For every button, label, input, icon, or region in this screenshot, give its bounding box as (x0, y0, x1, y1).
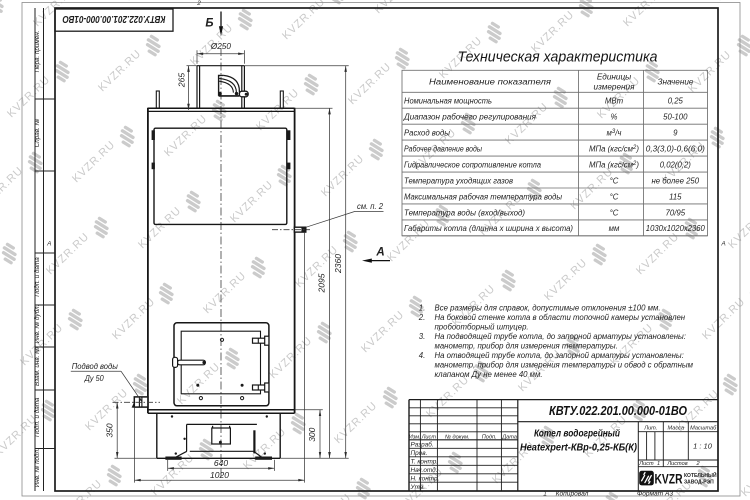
svg-text:KVZR.RU: KVZR.RU (280, 0, 328, 42)
svg-text:Подп. и дата: Подп. и дата (33, 397, 41, 437)
svg-text:1.: 1. (419, 304, 426, 313)
svg-text:KVZR.RU: KVZR.RU (332, 400, 380, 447)
svg-text:KVZR.RU: KVZR.RU (700, 296, 748, 343)
svg-text:КОТЕЛЬНЫЙ: КОТЕЛЬНЫЙ (684, 471, 717, 479)
svg-text:Инв. № дубл.: Инв. № дубл. (33, 305, 41, 344)
svg-text:KVZR.RU: KVZR.RU (346, 61, 394, 108)
svg-text:Инв. № подл.: Инв. № подл. (33, 448, 41, 487)
svg-text:KVZR.RU: KVZR.RU (359, 309, 407, 356)
svg-text:KVZR.RU: KVZR.RU (228, 179, 276, 226)
svg-text:Значение: Значение (658, 77, 694, 86)
svg-text:0,25: 0,25 (668, 97, 684, 106)
svg-text:м3/ч: м3/ч (607, 129, 622, 138)
svg-text:Б: Б (205, 18, 213, 30)
svg-text:KVZR.RU: KVZR.RU (110, 296, 158, 343)
svg-text:KVZR.RU: KVZR.RU (739, 453, 750, 500)
svg-text:Дата: Дата (501, 434, 517, 440)
svg-text:Температура воды (вход/выход): Температура воды (вход/выход) (404, 208, 525, 217)
svg-text:KVZR.RU: KVZR.RU (162, 113, 210, 160)
svg-text:2: 2 (695, 461, 700, 467)
svg-text:Утв.: Утв. (410, 484, 426, 491)
svg-text:пробоотборный штуцер.: пробоотборный штуцер. (435, 323, 529, 332)
svg-text:Лист: Лист (421, 434, 437, 440)
svg-text:KVZR.RU: KVZR.RU (201, 270, 249, 317)
svg-text:1: 1 (657, 461, 660, 467)
svg-text:КВТУ.022.201.00.000-01ВО: КВТУ.022.201.00.000-01ВО (63, 13, 166, 25)
svg-text:Номинальная мощность: Номинальная мощность (404, 97, 492, 106)
svg-text:Диапазон рабочего регулировани: Диапазон рабочего регулирования (403, 113, 537, 122)
svg-text:Техническая характеристика: Техническая характеристика (458, 50, 658, 66)
svg-text:На отводящей трубе котла, до з: На отводящей трубе котла, до запорной ар… (435, 351, 684, 360)
svg-text:манометр, прибор для измерения: манометр, прибор для измерения температу… (435, 342, 618, 351)
svg-text:1030х1020х2360: 1030х1020х2360 (646, 224, 706, 233)
svg-text:Heatexpert-КВр-0,25-КБ(К): Heatexpert-КВр-0,25-КБ(К) (520, 441, 637, 453)
svg-text:2: 2 (196, 0, 201, 7)
svg-text:На подводящей трубе котла, до: На подводящей трубе котла, до запорной а… (435, 332, 686, 341)
svg-text:Котел водогрейный: Котел водогрейный (534, 427, 620, 439)
svg-text:клапаном Ду не менее 40 мм.: клапаном Ду не менее 40 мм. (435, 370, 543, 379)
svg-text:KVZR.RU: KVZR.RU (634, 231, 682, 278)
svg-text:KVZR.RU: KVZR.RU (57, 478, 105, 500)
svg-text:50-100: 50-100 (663, 113, 688, 122)
svg-text:Перв. примен.: Перв. примен. (34, 31, 41, 73)
svg-text:Рабочее давление воды: Рабочее давление воды (404, 144, 482, 153)
svg-text:Взам. инв. №: Взам. инв. № (34, 347, 41, 386)
svg-text:640: 640 (214, 458, 228, 468)
svg-text:KVZR.RU: KVZR.RU (319, 153, 367, 200)
svg-text:KVZR.RU: KVZR.RU (568, 166, 616, 213)
svg-text:KVZR.RU: KVZR.RU (70, 139, 118, 186)
svg-text:А: А (375, 246, 384, 258)
svg-text:KVZR.RU: KVZR.RU (5, 74, 53, 121)
svg-text:2.: 2. (418, 313, 426, 322)
svg-text:Масса: Масса (668, 425, 685, 431)
svg-text:Н. контр.: Н. контр. (411, 476, 440, 483)
svg-text:0,02(0,2): 0,02(0,2) (660, 160, 692, 169)
svg-text:Единицы: Единицы (597, 73, 631, 82)
svg-text:2360: 2360 (333, 254, 343, 274)
svg-text:KVZR.RU: KVZR.RU (18, 322, 66, 369)
svg-text:Формат А3: Формат А3 (637, 491, 673, 498)
svg-text:KVZR.RU: KVZR.RU (136, 205, 184, 252)
svg-text:измерения: измерения (594, 83, 636, 92)
svg-text:Изм.: Изм. (409, 434, 421, 440)
svg-text:А: А (46, 241, 51, 248)
svg-text:МПа (кгс/см2): МПа (кгс/см2) (589, 144, 639, 153)
svg-text:KVZR.RU: KVZR.RU (686, 49, 734, 96)
svg-text:см. п. 2: см. п. 2 (357, 201, 383, 211)
svg-text:350: 350 (105, 423, 115, 437)
svg-text:Все размеры для справок, допус: Все размеры для справок, допустимые откл… (435, 304, 661, 313)
svg-text:Расход воды: Расход воды (404, 129, 450, 138)
svg-text:KVZR.RU: KVZR.RU (424, 374, 472, 421)
svg-text:°С: °С (610, 192, 619, 201)
svg-text:KVZR.RU: KVZR.RU (529, 9, 577, 56)
svg-text:°С: °С (610, 208, 619, 217)
svg-text:0,3(3,0)-0,6(6,0): 0,3(3,0)-0,6(6,0) (646, 144, 705, 153)
svg-text:300: 300 (307, 427, 317, 441)
svg-text:Наименование показателя: Наименование показателя (429, 77, 552, 86)
svg-text:Т. контр.: Т. контр. (411, 459, 439, 466)
svg-text:Подп.: Подп. (482, 434, 497, 440)
svg-text:KVZR.RU: KVZR.RU (267, 335, 315, 382)
svg-text:KVZR.RU: KVZR.RU (44, 231, 92, 278)
svg-text:А: А (720, 241, 725, 248)
svg-text:Максимальная рабочая температу: Максимальная рабочая температура воды (404, 192, 562, 201)
svg-text:2095: 2095 (317, 273, 327, 293)
svg-text:70/95: 70/95 (666, 208, 686, 217)
svg-text:3.: 3. (419, 332, 426, 341)
svg-text:Разраб.: Разраб. (411, 441, 434, 449)
svg-text:Лит.: Лит. (643, 425, 657, 431)
svg-text:Справ. №: Справ. № (34, 119, 41, 148)
svg-text:№ докум.: № докум. (445, 434, 470, 440)
svg-text:115: 115 (669, 192, 682, 201)
svg-text:1020: 1020 (210, 470, 229, 480)
svg-text:KVZR.RU: KVZR.RU (175, 361, 223, 408)
svg-text:манометр, прибор для измерения: манометр, прибор для измерения температу… (435, 361, 694, 370)
svg-text:Габариты котла (длинна х ширин: Габариты котла (длинна х ширина х высота… (404, 224, 573, 233)
svg-text:%: % (611, 113, 618, 122)
svg-text:не более 250: не более 250 (652, 176, 700, 185)
svg-text:Температура уходящих газов: Температура уходящих газов (404, 176, 513, 185)
svg-text:Нач.отд.: Нач.отд. (411, 466, 438, 474)
svg-text:KVZR.RU: KVZR.RU (621, 0, 669, 29)
svg-text:9: 9 (673, 129, 678, 138)
svg-text:265: 265 (177, 73, 187, 88)
svg-text:KVZR.RU: KVZR.RU (726, 205, 750, 252)
svg-text:1 : 10: 1 : 10 (693, 442, 713, 451)
svg-text:Лист: Лист (638, 461, 654, 467)
svg-text:Ду 50: Ду 50 (84, 373, 104, 383)
svg-text:Ø250: Ø250 (210, 41, 231, 51)
svg-text:ЗАВОД-РЭП: ЗАВОД-РЭП (684, 480, 714, 486)
svg-text:Гидравлическое сопротивление к: Гидравлическое сопротивление котла (404, 160, 542, 169)
svg-text:мм: мм (609, 224, 620, 233)
svg-text:KVZR.RU: KVZR.RU (542, 257, 590, 304)
svg-text:Пров.: Пров. (411, 450, 428, 457)
svg-text:KVZR: KVZR (655, 471, 683, 486)
svg-text:На боковой стенке котла в обла: На боковой стенке котла в области топочн… (435, 313, 686, 322)
svg-text:Листов: Листов (666, 461, 687, 467)
svg-text:1: 1 (543, 491, 547, 498)
svg-text:°С: °С (610, 176, 619, 185)
svg-text:KVZR.RU: KVZR.RU (241, 426, 289, 473)
svg-text:МВт: МВт (605, 97, 624, 106)
svg-text:Подвод воды: Подвод воды (72, 361, 119, 371)
svg-text:4.: 4. (419, 351, 426, 360)
svg-text:KVZR.RU: KVZR.RU (96, 48, 144, 95)
svg-text:Масштаб: Масштаб (690, 425, 717, 431)
svg-text:Копировал: Копировал (556, 491, 589, 498)
svg-text:МПа (кгс/см2): МПа (кгс/см2) (589, 160, 639, 169)
svg-text:Подп. и дата: Подп. и дата (33, 257, 41, 297)
svg-text:КВТУ.022.201.00.000-01ВО: КВТУ.022.201.00.000-01ВО (549, 404, 687, 418)
